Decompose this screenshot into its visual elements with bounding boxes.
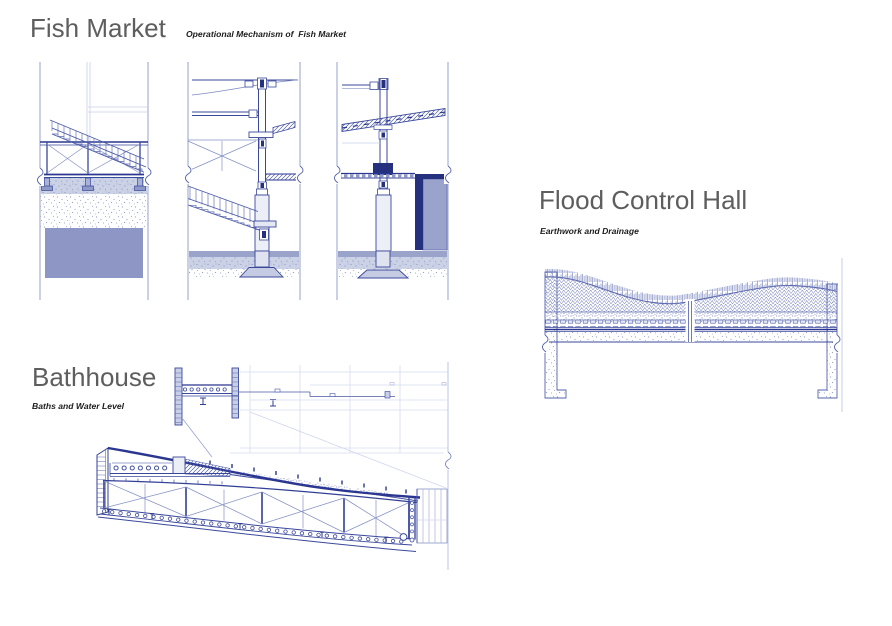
fish-market-panel-stair-column [188,78,300,277]
ground-stipple [40,194,148,228]
presentation-sheet: Fish Market Operational Mechanism of Fis… [0,0,892,626]
bathhouse-drawing [90,360,460,590]
flood-wall [415,174,447,250]
earthwork-roof [545,273,837,342]
fish-market-subtitle: Operational Mechanism of Fish Market [186,29,346,39]
end-wall-hatch [417,489,447,543]
fish-market-panel-pier-water [40,62,148,278]
fish-market-title: Fish Market [30,14,166,43]
upper-floor [175,368,447,457]
fish-market-panel-conveyor-wall [338,79,447,279]
roof-joint-gap [686,299,695,342]
flood-control-hall-drawing [530,255,862,415]
flood-control-hall-title: Flood Control Hall [539,186,747,215]
flood-control-hall-subtitle: Earthwork and Drainage [540,226,639,236]
water-body [45,228,143,278]
background-grid [230,365,448,488]
section-break-mark [444,452,452,470]
fish-market-drawing [30,55,460,305]
sloping-truss [97,448,447,552]
